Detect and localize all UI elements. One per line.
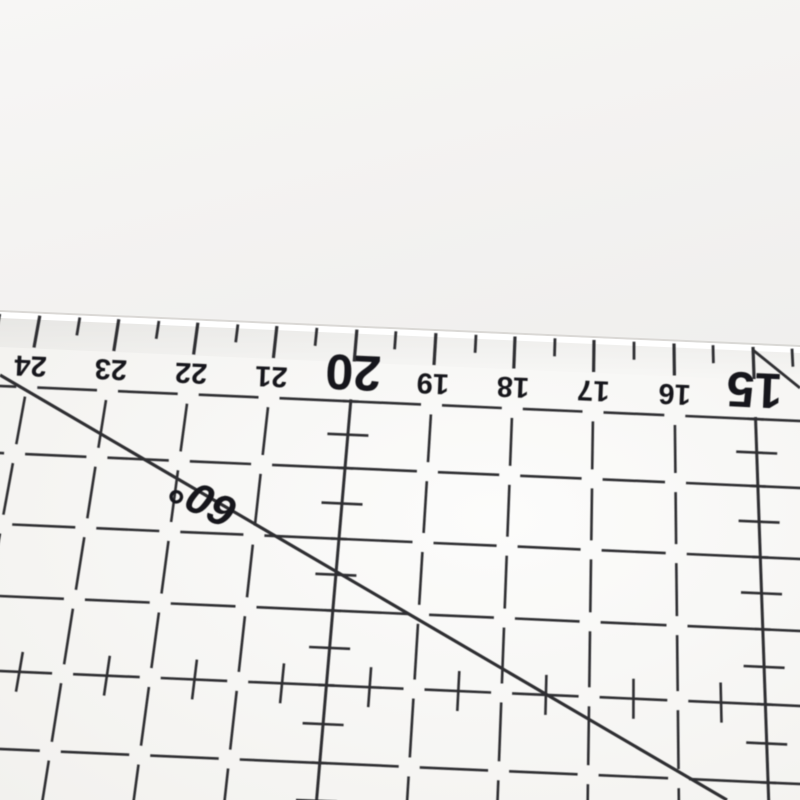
unit-tick-mark: [434, 333, 436, 365]
grid-column-dash: [589, 631, 590, 687]
grid-column-dash: [678, 710, 679, 769]
scale-number-17: 17: [577, 373, 611, 406]
grid-column-dash: [679, 788, 680, 800]
ruler-photo-svg: 24232221201918171615 60°: [0, 0, 800, 800]
scale-number-15: 15: [725, 361, 783, 419]
grid-column-dash: [677, 635, 678, 691]
scale-number-23: 23: [94, 352, 128, 385]
half-tick-mark: [792, 349, 793, 367]
scale-number-16: 16: [658, 377, 692, 410]
half-tick-mark: [475, 335, 476, 353]
scale-number-18: 18: [496, 370, 530, 403]
solid-line-half-tick: [741, 592, 782, 594]
grid-column-dash: [676, 492, 677, 544]
unit-tick-mark: [514, 337, 515, 369]
solid-line-half-tick: [322, 503, 363, 505]
half-tick-mark: [315, 328, 317, 346]
grid-column-dash: [590, 559, 591, 612]
ruler-photo: 24232221201918171615 60°: [0, 0, 800, 800]
grid-column-dash: [588, 706, 589, 765]
grid-column-dash: [591, 488, 592, 540]
grid-column-dash: [587, 784, 588, 800]
solid-line-half-tick: [746, 743, 787, 745]
half-tick-mark: [555, 338, 556, 356]
solid-line-half-tick: [303, 723, 344, 725]
solid-line-half-tick: [315, 574, 356, 576]
half-cross-tick: [721, 683, 722, 723]
grid-column-dash: [676, 563, 677, 616]
solid-line-half-tick: [744, 666, 785, 668]
solid-line-half-tick: [739, 521, 780, 523]
grid-column-dash: [510, 418, 512, 466]
solid-line-half-tick: [736, 452, 777, 454]
scale-number-22: 22: [174, 356, 208, 389]
solid-line-half-tick: [309, 647, 350, 649]
scale-number-21: 21: [255, 359, 289, 392]
grid-column-dash: [675, 425, 676, 473]
scale-number-20: 20: [324, 343, 382, 401]
scale-number-19: 19: [416, 366, 450, 399]
scale-number-24: 24: [14, 349, 48, 382]
half-tick-mark: [395, 331, 396, 349]
grid-column-dash: [592, 421, 593, 469]
solid-line-half-tick: [327, 434, 368, 436]
